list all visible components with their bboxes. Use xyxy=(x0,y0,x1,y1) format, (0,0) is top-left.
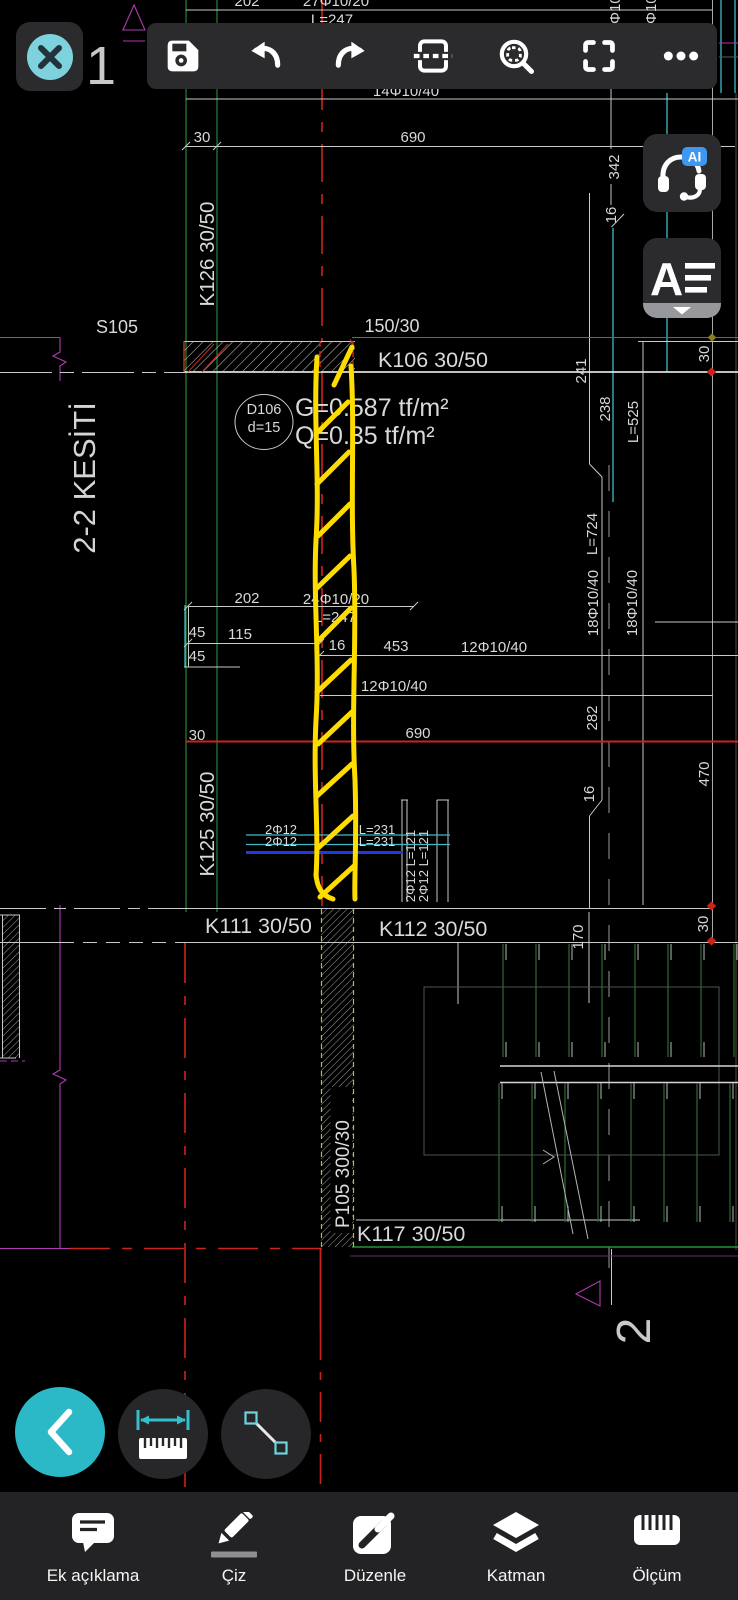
svg-text:16: 16 xyxy=(329,637,346,654)
svg-text:L=724: L=724 xyxy=(584,513,601,555)
svg-text:D106: D106 xyxy=(247,402,282,418)
svg-text:238: 238 xyxy=(597,396,614,421)
svg-text:2Φ12 L=121: 2Φ12 L=121 xyxy=(416,830,431,902)
svg-text:Φ10: Φ10 xyxy=(607,0,624,24)
svg-text:P105 300/30: P105 300/30 xyxy=(333,1120,354,1228)
svg-text:150/30: 150/30 xyxy=(364,316,419,336)
svg-text:2Φ12: 2Φ12 xyxy=(265,834,297,849)
svg-text:24Φ10/20: 24Φ10/20 xyxy=(303,591,369,608)
svg-text:L=525: L=525 xyxy=(625,401,642,443)
svg-text:30: 30 xyxy=(189,727,206,744)
svg-text:L=231: L=231 xyxy=(359,834,396,849)
svg-text:453: 453 xyxy=(383,638,408,655)
svg-text:690: 690 xyxy=(405,725,430,742)
svg-text:AI: AI xyxy=(688,150,702,165)
svg-text:1: 1 xyxy=(86,36,116,96)
svg-text:K106 30/50: K106 30/50 xyxy=(378,348,488,372)
svg-text:A: A xyxy=(650,253,683,305)
svg-text:282: 282 xyxy=(584,705,601,730)
svg-text:K125 30/50: K125 30/50 xyxy=(196,772,219,877)
svg-text:45: 45 xyxy=(189,624,206,641)
svg-text:12Φ10/40: 12Φ10/40 xyxy=(361,678,427,695)
svg-text:202: 202 xyxy=(234,0,259,10)
svg-text:K112 30/50: K112 30/50 xyxy=(379,917,487,941)
svg-text:K117 30/50: K117 30/50 xyxy=(357,1222,465,1246)
svg-text:18Φ10/40: 18Φ10/40 xyxy=(624,570,641,636)
svg-text:30: 30 xyxy=(194,129,211,146)
svg-text:170: 170 xyxy=(570,924,587,949)
svg-text:45: 45 xyxy=(189,648,206,665)
svg-text:d=15: d=15 xyxy=(248,420,281,436)
svg-text:30: 30 xyxy=(696,346,713,363)
svg-text:30: 30 xyxy=(695,916,712,933)
svg-text:470: 470 xyxy=(696,761,713,786)
svg-text:18Φ10/40: 18Φ10/40 xyxy=(585,570,602,636)
svg-text:S105: S105 xyxy=(96,317,138,337)
svg-text:690: 690 xyxy=(400,129,425,146)
svg-text:16: 16 xyxy=(603,207,620,224)
svg-text:27Φ10/20: 27Φ10/20 xyxy=(303,0,369,10)
svg-text:16: 16 xyxy=(581,786,598,803)
svg-text:K111 30/50: K111 30/50 xyxy=(205,914,312,938)
svg-text:342: 342 xyxy=(606,154,623,179)
svg-text:Φ10: Φ10 xyxy=(643,0,660,24)
svg-text:202: 202 xyxy=(234,590,259,607)
svg-text:12Φ10/40: 12Φ10/40 xyxy=(461,639,527,656)
svg-text:K126 30/50: K126 30/50 xyxy=(196,202,219,307)
svg-text:2: 2 xyxy=(608,1318,661,1345)
svg-text:2-2 KESİTİ: 2-2 KESİTİ xyxy=(67,402,102,554)
svg-text:241: 241 xyxy=(573,358,590,383)
svg-text:115: 115 xyxy=(228,626,252,643)
